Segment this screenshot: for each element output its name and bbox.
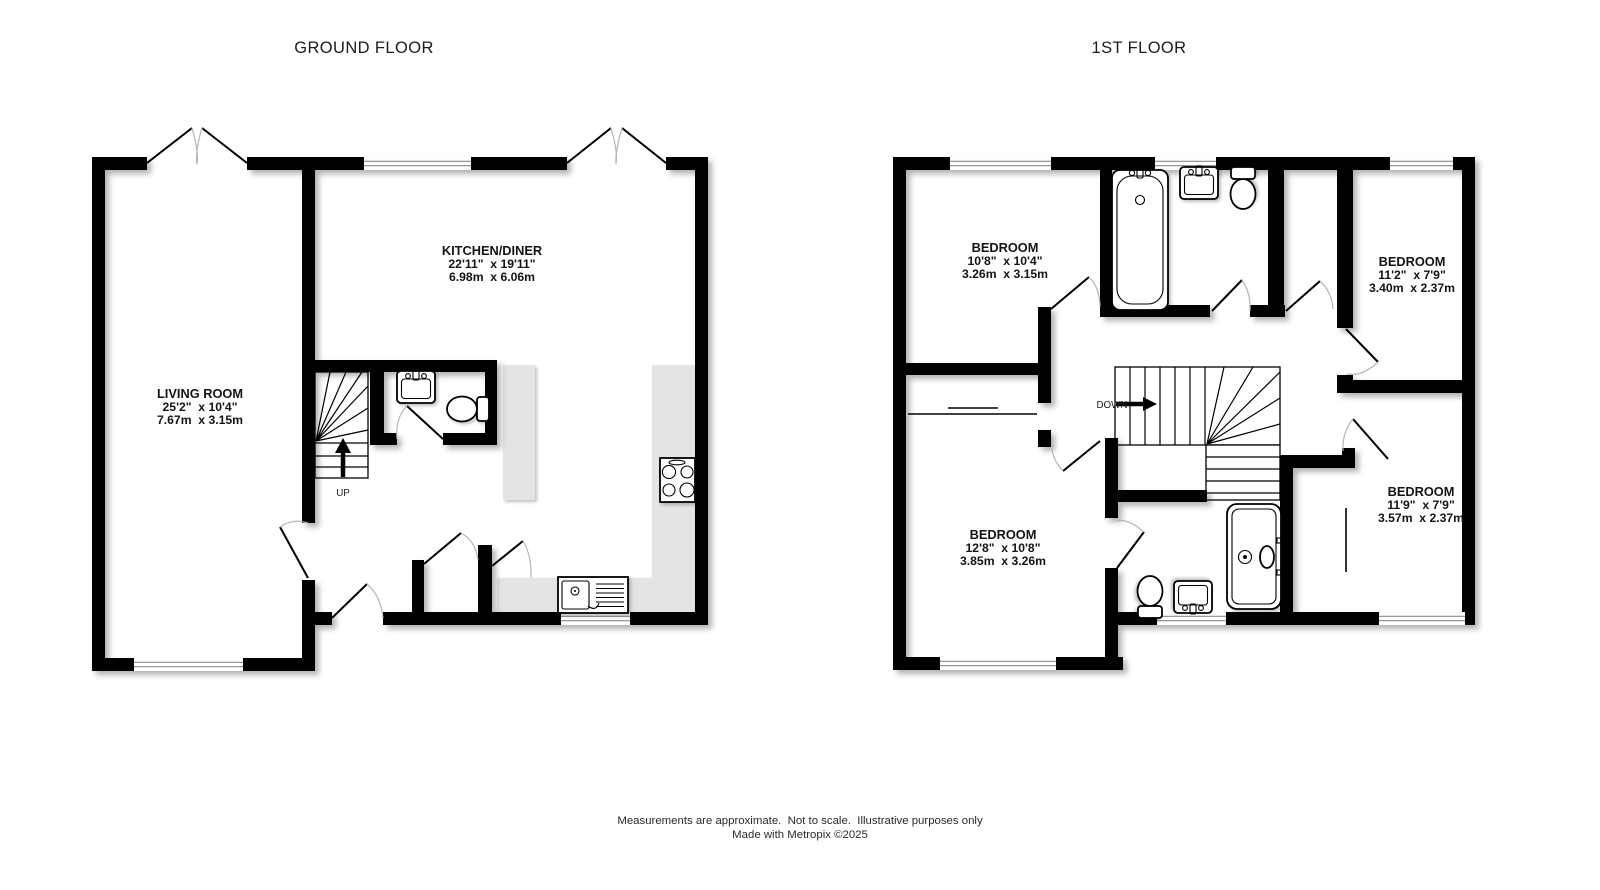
room-label-bedroom-3: BEDROOM 12'8" x 10'8" 3.85m x 3.26m <box>960 527 1046 568</box>
window <box>948 157 1053 170</box>
footer-line-2: Made with Metropix ©2025 <box>732 829 868 841</box>
ground-floor-plan: UP <box>92 128 708 671</box>
room-label-bedroom-1: BEDROOM 10'8" x 10'4" 3.26m x 3.15m <box>962 240 1048 281</box>
bath-icon <box>1112 167 1168 310</box>
floorplan-svg: GROUND FLOOR 1ST FLOOR UP <box>0 0 1600 890</box>
toilet-icon <box>1231 167 1256 209</box>
door-cupboard <box>1286 281 1333 311</box>
footer-line-1: Measurements are approximate. Not to sca… <box>617 815 983 827</box>
door-front <box>332 584 383 618</box>
door-bathroom <box>1212 280 1250 311</box>
room-imperial: 11'2" x 7'9" <box>1378 268 1446 282</box>
kitchen-sink-icon <box>558 577 628 613</box>
room-name: BEDROOM <box>970 527 1037 542</box>
french-doors <box>567 128 666 164</box>
room-metric: 3.26m x 3.15m <box>962 267 1048 281</box>
door-bedroom-2 <box>1346 329 1378 375</box>
room-label-kitchen-diner: KITCHEN/DINER 22'11" x 19'11" 6.98m x 6.… <box>442 243 542 284</box>
sink-icon <box>1174 581 1212 614</box>
shower-icon <box>1227 504 1284 609</box>
window <box>362 157 473 170</box>
room-name: KITCHEN/DINER <box>442 243 542 258</box>
room-metric: 3.40m x 2.37m <box>1369 281 1455 295</box>
door-wc <box>397 406 443 439</box>
sink-icon <box>397 370 435 403</box>
room-label-living-room: LIVING ROOM 25'2" x 10'4" 7.67m x 3.15m <box>157 386 243 427</box>
floorplan-canvas: GROUND FLOOR 1ST FLOOR UP <box>0 0 1600 890</box>
window <box>559 612 632 625</box>
room-imperial: 12'8" x 10'8" <box>966 541 1041 555</box>
door-closet <box>424 533 478 564</box>
door-bedroom-3 <box>1052 441 1100 471</box>
window <box>938 657 1058 670</box>
room-imperial: 10'8" x 10'4" <box>968 254 1043 268</box>
window <box>1388 157 1455 170</box>
room-imperial: 11'9" x 7'9" <box>1387 498 1455 512</box>
door-bedroom-1 <box>1051 277 1100 309</box>
room-imperial: 22'11" x 19'11" <box>448 257 535 271</box>
toilet-icon <box>1138 576 1163 618</box>
room-label-bedroom-2: BEDROOM 11'2" x 7'9" 3.40m x 2.37m <box>1369 254 1455 295</box>
staircase-up <box>315 372 368 478</box>
french-doors <box>147 128 247 164</box>
first-floor-plan: DOWN <box>893 157 1475 670</box>
staircase-down <box>1115 367 1280 500</box>
door-shower-room <box>1117 520 1144 568</box>
first-floor-title: 1ST FLOOR <box>1092 39 1187 57</box>
room-name: BEDROOM <box>1379 254 1446 269</box>
room-name: LIVING ROOM <box>157 386 243 401</box>
door-kitchen <box>492 541 531 578</box>
room-metric: 6.98m x 6.06m <box>449 270 535 284</box>
counter-peninsula <box>503 365 535 500</box>
toilet-icon <box>447 397 489 422</box>
room-divider-line <box>908 408 1037 414</box>
stairs-down-label: DOWN <box>1096 400 1127 411</box>
stairs-up-label: UP <box>336 488 350 499</box>
room-metric: 7.67m x 3.15m <box>157 413 243 427</box>
room-name: BEDROOM <box>1388 484 1455 499</box>
room-metric: 3.57m x 2.37m <box>1378 511 1464 525</box>
hob-icon <box>660 458 695 502</box>
footer-disclaimer: Measurements are approximate. Not to sca… <box>617 815 983 841</box>
room-label-bedroom-4: BEDROOM 11'9" x 7'9" 3.57m x 2.37m <box>1378 484 1464 525</box>
ground-floor-title: GROUND FLOOR <box>294 39 434 57</box>
sink-icon <box>1180 166 1218 199</box>
window <box>1377 612 1467 625</box>
window <box>132 658 245 671</box>
door-living-room <box>280 521 308 578</box>
room-imperial: 25'2" x 10'4" <box>163 400 238 414</box>
room-name: BEDROOM <box>972 240 1039 255</box>
room-metric: 3.85m x 3.26m <box>960 554 1046 568</box>
